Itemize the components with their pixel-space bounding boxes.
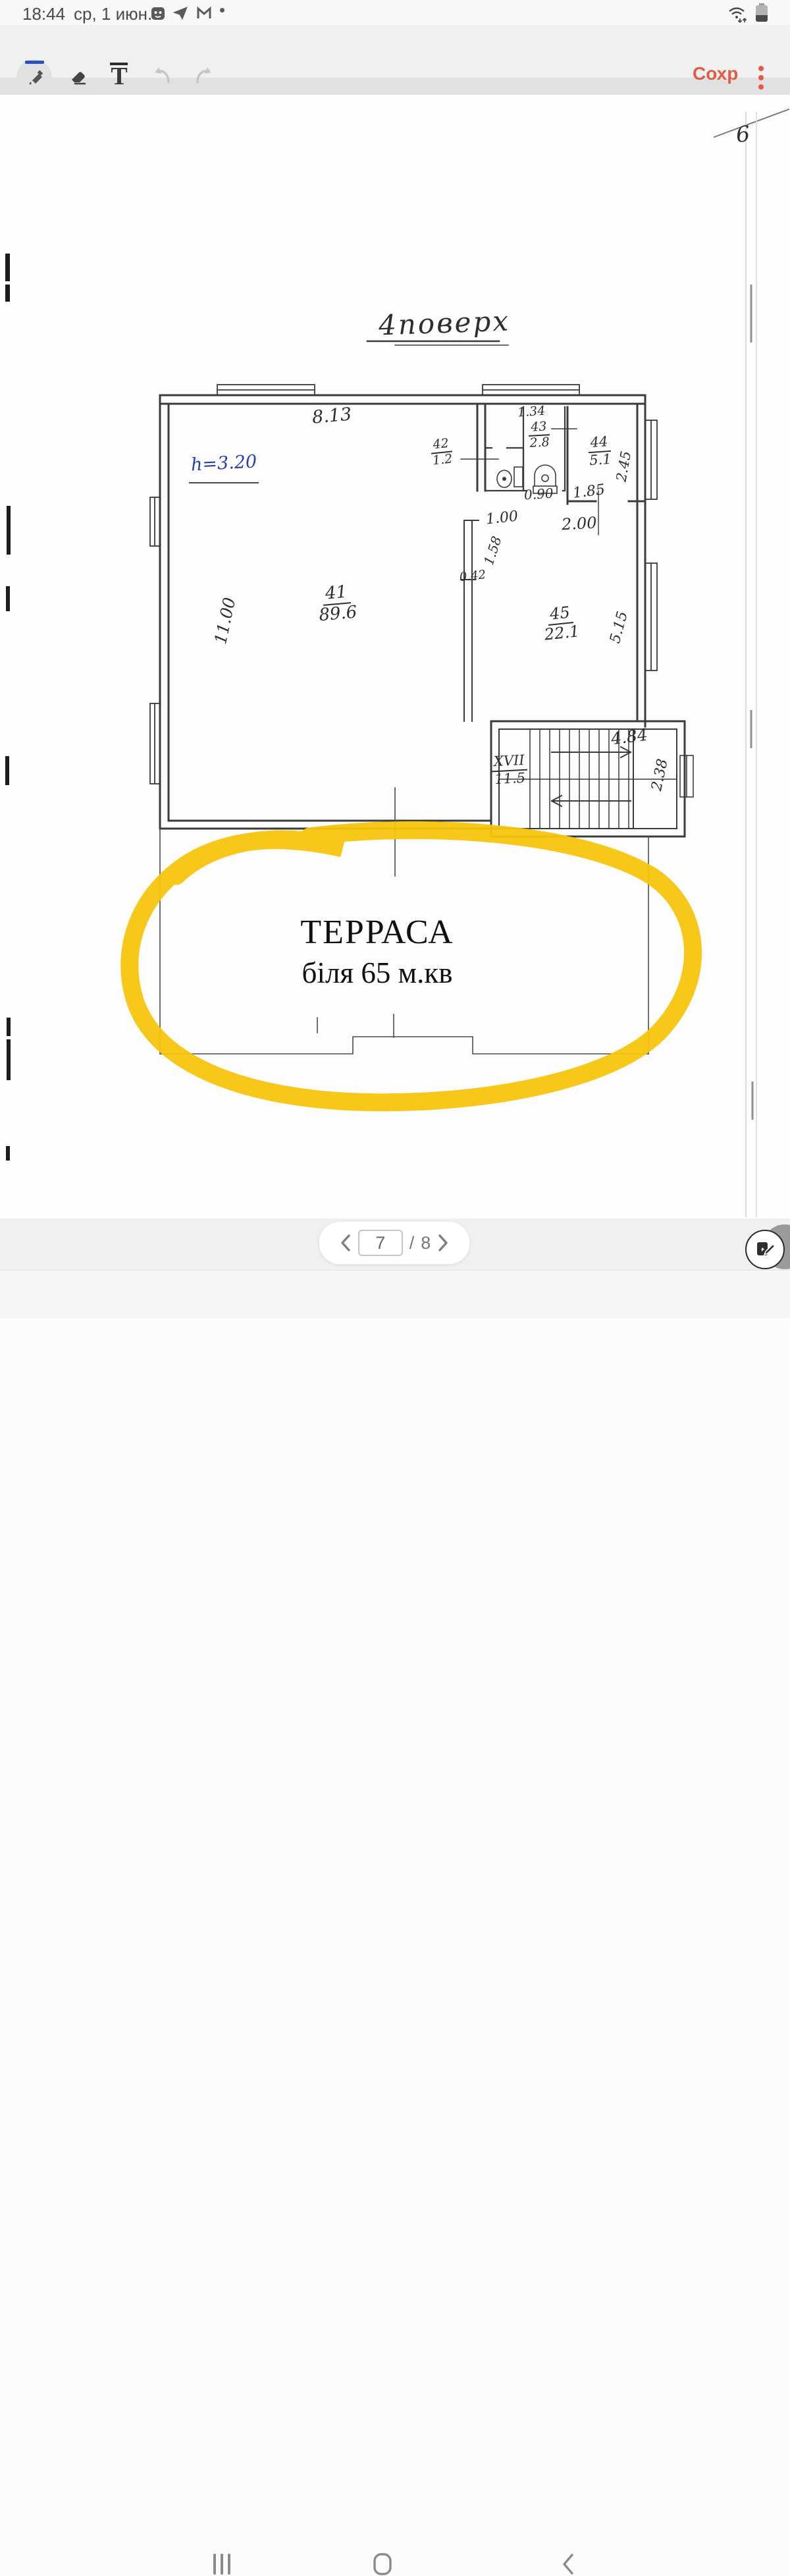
active-tool-underline xyxy=(25,61,44,64)
note-pencil-icon xyxy=(754,1239,776,1260)
terrace-note: біля 65 м.кв xyxy=(242,956,512,990)
dim-r43-width: 1.34 xyxy=(517,404,546,420)
scan-artifacts xyxy=(5,254,11,1161)
height-note: h=3.20 xyxy=(190,451,257,475)
current-page-input[interactable]: 7 xyxy=(358,1230,403,1256)
text-tool-underline xyxy=(110,63,128,65)
room-45-label: 45 22.1 xyxy=(538,603,584,644)
page-separator: / xyxy=(409,1233,415,1253)
pen-icon xyxy=(24,65,46,88)
dim-wall-stub: 0.42 xyxy=(459,568,487,584)
overflow-menu-button[interactable] xyxy=(754,65,768,91)
terrace-title: ТЕРРАСА xyxy=(242,913,512,952)
handwritten-page-number: 6 xyxy=(735,121,750,148)
text-tool-icon: T xyxy=(111,64,127,89)
room-41-label: 41 89.6 xyxy=(311,582,362,626)
room-44-label: 44 5.1 xyxy=(581,433,618,469)
dim-door-43: 0.90 xyxy=(523,485,554,503)
wifi-arrows-icon xyxy=(727,4,749,24)
previous-page-button[interactable] xyxy=(340,1234,352,1252)
battery-icon xyxy=(754,3,769,22)
recents-button[interactable] xyxy=(212,2552,232,2576)
floor-plan-drawing xyxy=(0,0,790,1317)
notification-dot xyxy=(220,8,224,13)
back-button[interactable] xyxy=(561,2552,575,2576)
dim-top-width: 8.13 xyxy=(311,404,353,427)
eraser-icon xyxy=(66,65,89,88)
save-button[interactable]: Сохр xyxy=(693,63,738,84)
redo-button[interactable] xyxy=(186,58,223,95)
room-43-label: 43 2.8 xyxy=(523,420,555,451)
undo-button[interactable] xyxy=(144,58,180,95)
clock: 18:44 xyxy=(22,4,65,24)
editor-toolbar: T Сохр xyxy=(0,25,790,78)
date: ср, 1 июн. xyxy=(74,4,152,24)
bot-icon xyxy=(150,5,166,21)
eraser-tool-button[interactable] xyxy=(59,58,96,95)
undo-arrow-icon xyxy=(150,65,174,88)
android-nav-bar xyxy=(0,1270,790,1318)
status-bar: 18:44 ср, 1 июн. xyxy=(0,0,790,25)
room-42-label: 42 1.2 xyxy=(425,436,459,469)
redo-arrow-icon xyxy=(192,65,216,88)
next-page-button[interactable] xyxy=(437,1234,449,1252)
edit-note-fab[interactable] xyxy=(745,1230,785,1269)
dim-lobby-width: 2.00 xyxy=(561,514,597,534)
home-button[interactable] xyxy=(373,2552,392,2576)
gmail-icon xyxy=(196,5,212,21)
floor-title: 4поверх xyxy=(378,305,511,342)
page-navigator: 7 / 8 xyxy=(319,1221,470,1265)
telegram-icon xyxy=(172,5,188,21)
stairwell-label: XVII 11.5 xyxy=(488,752,532,787)
dim-door-41: 1.00 xyxy=(485,508,519,528)
terrace-annotation: ТЕРРАСА біля 65 м.кв xyxy=(242,913,512,990)
screen: { "status_bar": { "time": "18:44", "date… xyxy=(0,0,790,1317)
total-pages: 8 xyxy=(421,1233,431,1253)
